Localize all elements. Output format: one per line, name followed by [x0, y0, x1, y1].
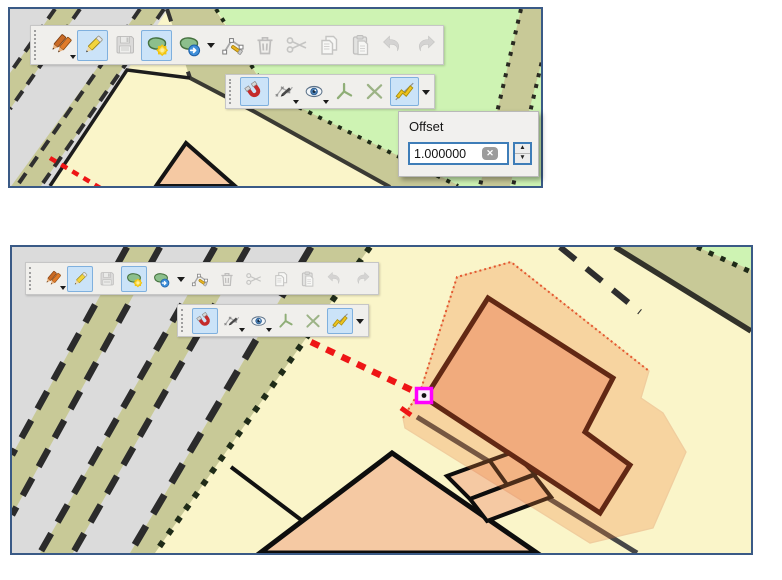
tracing-icon	[277, 312, 295, 330]
offset-curve-dropdown-button[interactable]	[420, 80, 431, 103]
offset-curve-icon	[394, 81, 415, 102]
snapping-magnet-icon	[244, 81, 265, 102]
spin-down-button[interactable]: ▼	[515, 154, 530, 163]
offset-curve-button[interactable]	[390, 77, 419, 106]
offset-label: Offset	[409, 119, 443, 134]
chevron-down-icon	[177, 277, 185, 286]
digitizing-toolbar	[25, 262, 379, 295]
toolbar-grip[interactable]	[181, 309, 188, 332]
toolbar-grip[interactable]	[29, 267, 36, 290]
save-edits-button[interactable]	[109, 30, 140, 61]
add-feature-icon	[145, 33, 169, 57]
topology-eye-button[interactable]	[246, 308, 272, 334]
dropdown-arrow-icon[interactable]	[239, 328, 245, 335]
copy-features-icon	[317, 33, 341, 57]
cut-features-button[interactable]	[281, 30, 312, 61]
dropdown-arrow-icon[interactable]	[70, 55, 76, 62]
paste-features-button[interactable]	[345, 30, 376, 61]
save-edits-button[interactable]	[94, 266, 120, 292]
intersection-icon	[364, 81, 385, 102]
add-feature-button[interactable]	[141, 30, 172, 61]
redo-button[interactable]	[409, 30, 440, 61]
toolbar-grip[interactable]	[229, 79, 236, 104]
snapping-toolbar	[225, 74, 435, 109]
move-feature-icon	[152, 270, 170, 288]
tracing-button[interactable]	[330, 77, 359, 106]
save-edits-icon	[98, 270, 116, 288]
move-feature-icon	[177, 33, 201, 57]
add-feature-button[interactable]	[121, 266, 147, 292]
node-tool-icon	[221, 33, 245, 57]
vertex-tool-button[interactable]	[219, 308, 245, 334]
paste-features-icon	[349, 33, 373, 57]
toggle-editing-button[interactable]	[77, 30, 108, 61]
paste-features-icon	[299, 270, 317, 288]
delete-selected-icon	[253, 33, 277, 57]
chevron-down-icon	[207, 43, 215, 52]
undo-icon	[326, 270, 344, 288]
snapping-toolbar	[177, 304, 369, 337]
move-feature-button[interactable]	[173, 30, 204, 61]
vertex-tool-button[interactable]	[270, 77, 299, 106]
toolbar-grip[interactable]	[34, 30, 41, 60]
vertex-tool-icon	[274, 81, 295, 102]
move-feature-dropdown-button[interactable]	[205, 32, 216, 59]
dropdown-arrow-icon[interactable]	[266, 328, 272, 335]
offset-curve-button[interactable]	[327, 308, 353, 334]
move-feature-dropdown-button[interactable]	[175, 268, 186, 290]
current-edits-button[interactable]	[45, 30, 76, 61]
toggle-editing-icon	[81, 33, 105, 57]
vertex-marker	[417, 389, 432, 403]
digitizing-toolbar	[30, 25, 444, 65]
node-tool-icon	[191, 270, 209, 288]
dropdown-arrow-icon[interactable]	[323, 100, 329, 107]
snapping-magnet-icon	[196, 312, 214, 330]
delete-selected-button[interactable]	[214, 266, 240, 292]
move-feature-button[interactable]	[148, 266, 174, 292]
screenshot-root: Offset ✕ ▲ ▼	[0, 0, 782, 580]
clear-icon[interactable]: ✕	[482, 147, 498, 160]
copy-features-button[interactable]	[268, 266, 294, 292]
spin-up-button[interactable]: ▲	[515, 144, 530, 154]
offset-popup: Offset ✕ ▲ ▼	[398, 111, 539, 177]
offset-curve-icon	[331, 312, 349, 330]
intersection-icon	[304, 312, 322, 330]
dropdown-arrow-icon[interactable]	[293, 100, 299, 107]
paste-features-button[interactable]	[295, 266, 321, 292]
topology-eye-button[interactable]	[300, 77, 329, 106]
offset-spinbox[interactable]: ✕	[408, 142, 509, 165]
add-feature-icon	[125, 270, 143, 288]
tracing-button[interactable]	[273, 308, 299, 334]
undo-button[interactable]	[377, 30, 408, 61]
node-tool-button[interactable]	[217, 30, 248, 61]
cut-features-icon	[245, 270, 263, 288]
intersection-button[interactable]	[360, 77, 389, 106]
delete-selected-button[interactable]	[249, 30, 280, 61]
redo-icon	[353, 270, 371, 288]
topology-eye-icon	[304, 81, 325, 102]
redo-button[interactable]	[349, 266, 375, 292]
copy-features-button[interactable]	[313, 30, 344, 61]
offset-curve-dropdown-button[interactable]	[354, 310, 365, 332]
toggle-editing-button[interactable]	[67, 266, 93, 292]
snapping-magnet-button[interactable]	[192, 308, 218, 334]
intersection-button[interactable]	[300, 308, 326, 334]
tracing-icon	[334, 81, 355, 102]
chevron-down-icon	[356, 319, 364, 328]
undo-button[interactable]	[322, 266, 348, 292]
delete-selected-icon	[218, 270, 236, 288]
chevron-down-icon	[422, 90, 430, 99]
offset-input[interactable]	[410, 147, 480, 161]
current-edits-icon	[49, 33, 73, 57]
save-edits-icon	[113, 33, 137, 57]
node-tool-button[interactable]	[187, 266, 213, 292]
cut-features-button[interactable]	[241, 266, 267, 292]
toggle-editing-icon	[71, 270, 89, 288]
snapping-magnet-button[interactable]	[240, 77, 269, 106]
redo-icon	[413, 33, 437, 57]
cut-features-icon	[285, 33, 309, 57]
dropdown-arrow-icon[interactable]	[60, 286, 66, 293]
undo-icon	[381, 33, 405, 57]
offset-spinner: ▲ ▼	[513, 142, 532, 165]
copy-features-icon	[272, 270, 290, 288]
current-edits-button[interactable]	[40, 266, 66, 292]
